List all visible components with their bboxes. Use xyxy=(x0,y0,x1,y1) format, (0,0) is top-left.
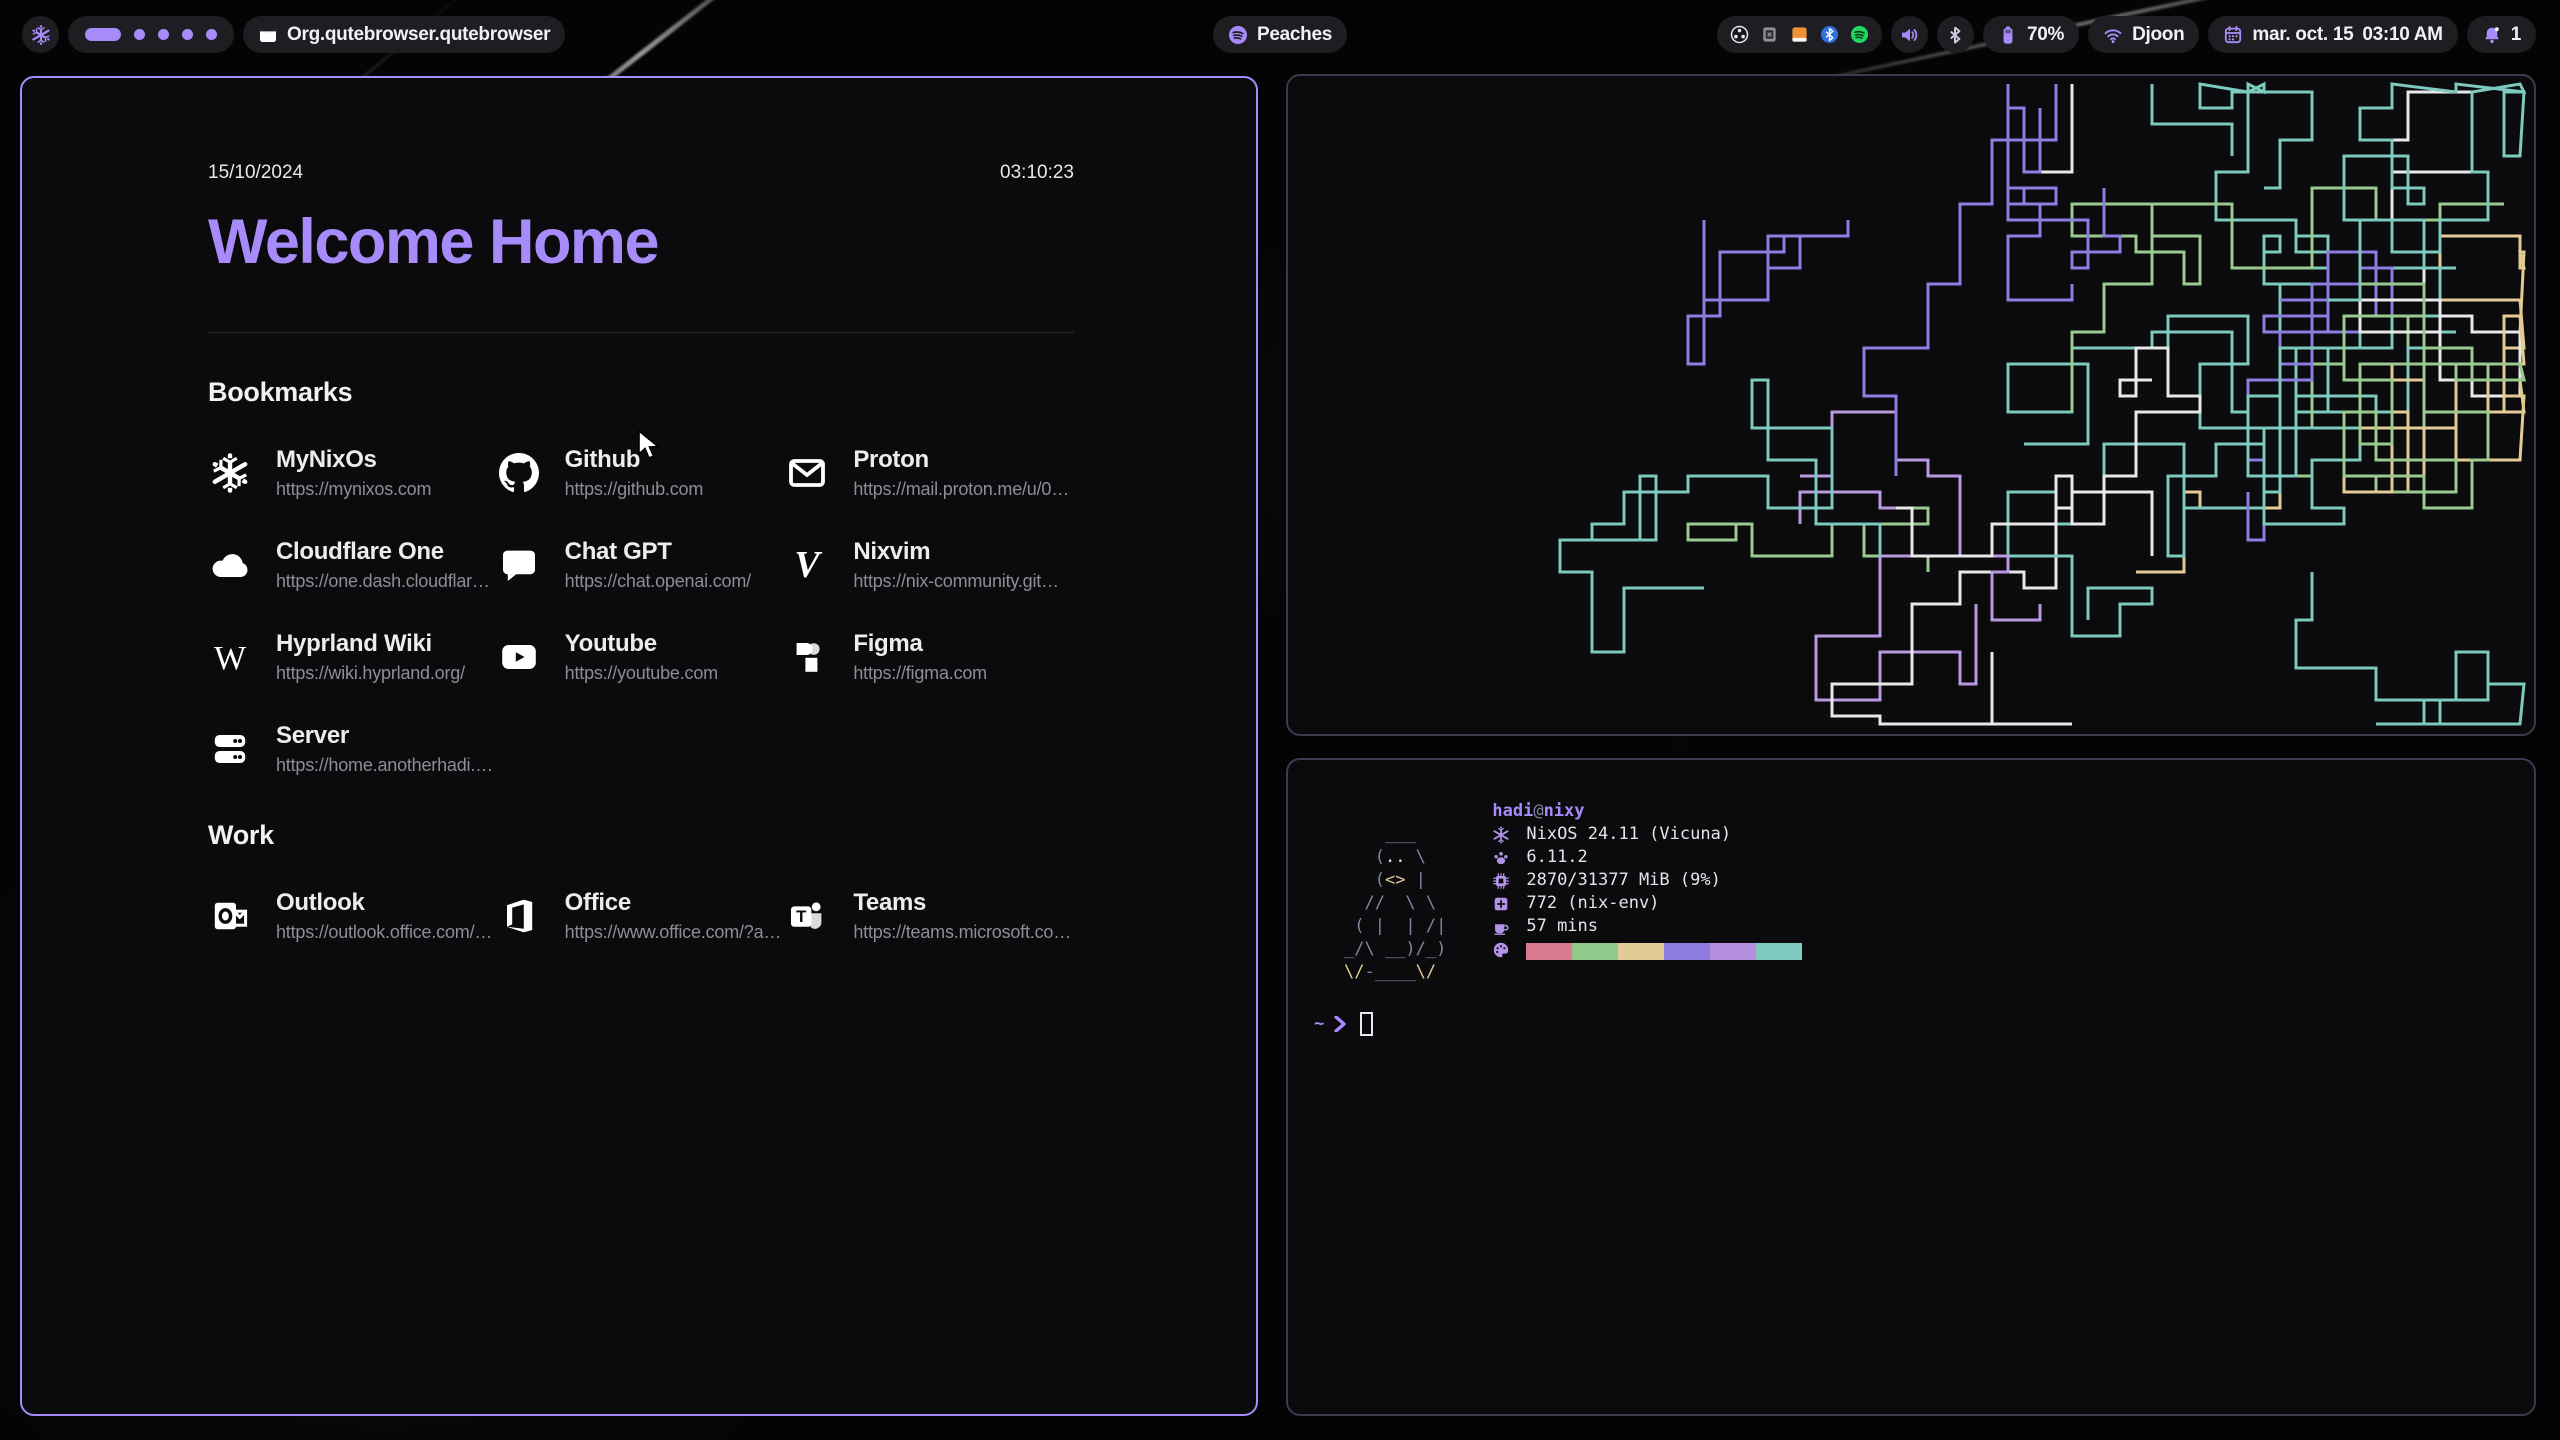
bookmark-grid: MyNixOs https://mynixos.com Github https… xyxy=(208,446,1074,776)
youtube-icon xyxy=(497,635,541,679)
color-swatch xyxy=(1618,943,1664,960)
workspace-dot[interactable] xyxy=(134,29,145,40)
bookmark-item[interactable]: Office https://www.office.com/?a… xyxy=(497,889,786,943)
fetch-user: hadi xyxy=(1492,800,1533,823)
bookmark-url: https://figma.com xyxy=(853,663,987,684)
bookmark-title: Server xyxy=(276,722,493,750)
spotify-icon xyxy=(1228,25,1248,45)
bookmark-title: MyNixOs xyxy=(276,446,431,474)
bookmark-title: Outlook xyxy=(276,889,492,917)
bookmark-item[interactable]: MyNixOs https://mynixos.com xyxy=(208,446,497,500)
section-header: Bookmarks xyxy=(208,377,1074,408)
workspace-dot[interactable] xyxy=(206,29,217,40)
terminal-cursor xyxy=(1360,1012,1373,1036)
teams-icon: T xyxy=(785,894,829,938)
window-icon xyxy=(258,25,278,45)
bookmark-item[interactable]: T Teams https://teams.microsoft.co… xyxy=(785,889,1074,943)
bookmark-title: Office xyxy=(565,889,782,917)
qutebrowser-window: 15/10/2024 03:10:23 Welcome Home Bookmar… xyxy=(20,76,1258,1416)
snowflake-icon xyxy=(1492,826,1512,844)
nixos-launcher-button[interactable] xyxy=(22,16,59,53)
battery-pill[interactable]: 70% xyxy=(1983,16,2079,53)
cloud-icon xyxy=(208,543,252,587)
bookmark-url: https://nix-community.git… xyxy=(853,571,1059,592)
focused-window-title: Org.qutebrowser.qutebrowser xyxy=(287,24,550,46)
bluetooth-icon xyxy=(1945,25,1965,45)
bluetooth-button[interactable] xyxy=(1937,16,1974,53)
nixos-logo-icon xyxy=(31,25,51,45)
bluetooth-badge-icon[interactable] xyxy=(1820,25,1839,44)
server-icon xyxy=(208,727,252,771)
box-icon[interactable] xyxy=(1760,25,1779,44)
bookmark-url: https://teams.microsoft.co… xyxy=(853,922,1071,943)
fetch-info-value: 2870/31377 MiB (9%) xyxy=(1526,869,1720,892)
battery-icon xyxy=(1998,25,2018,45)
calendar-icon xyxy=(2223,25,2243,45)
prompt-chevron-icon xyxy=(1334,1016,1346,1032)
bookmark-url: https://home.anotherhadi.… xyxy=(276,755,493,776)
bookmark-title: Proton xyxy=(853,446,1069,474)
shell-prompt[interactable]: ~ xyxy=(1314,1012,1373,1036)
chat-icon xyxy=(497,543,541,587)
bookmark-title: Github xyxy=(565,446,703,474)
github-icon xyxy=(497,451,541,495)
bookmark-item[interactable]: Cloudflare One https://one.dash.cloudfla… xyxy=(208,538,497,592)
kernel-icon xyxy=(1492,849,1512,867)
color-swatch xyxy=(1572,943,1618,960)
fetch-info-value: NixOS 24.11 (Vicuna) xyxy=(1526,823,1731,846)
bookmark-url: https://mynixos.com xyxy=(276,479,431,500)
page-title: Welcome Home xyxy=(208,206,1074,278)
bookmark-url: https://youtube.com xyxy=(565,663,718,684)
nixvim-icon: V xyxy=(785,543,829,587)
fetch-terminal-window[interactable]: ___ (.. \ (<> | // \ \ ( | | /|_/\ __)/_… xyxy=(1286,758,2536,1416)
bookmark-grid: Outlook https://outlook.office.com/… Off… xyxy=(208,889,1074,943)
downloads-icon[interactable] xyxy=(1790,25,1809,44)
palette-icon xyxy=(1492,941,1512,959)
fetch-info-value: 6.11.2 xyxy=(1526,846,1587,869)
pipes-screensaver xyxy=(1288,76,2534,734)
bookmark-item[interactable]: Chat GPT https://chat.openai.com/ xyxy=(497,538,786,592)
fetch-at: @ xyxy=(1533,800,1543,823)
bookmark-url: https://github.com xyxy=(565,479,703,500)
svg-text:W: W xyxy=(214,640,247,677)
figma-icon xyxy=(785,635,829,679)
startpage-date: 15/10/2024 xyxy=(208,162,303,184)
clock-date: mar. oct. 15 xyxy=(2252,24,2353,46)
prompt-cwd: ~ xyxy=(1314,1013,1324,1036)
bookmark-title: Teams xyxy=(853,889,1071,917)
mail-icon xyxy=(785,451,829,495)
nix-icon xyxy=(208,451,252,495)
media-player-pill[interactable]: Peaches xyxy=(1213,16,1347,53)
wifi-ssid: Djoon xyxy=(2132,24,2184,46)
media-track-label: Peaches xyxy=(1257,24,1332,46)
bookmark-title: Cloudflare One xyxy=(276,538,490,566)
fetch-host: nixy xyxy=(1544,800,1585,823)
bookmark-url: https://mail.proton.me/u/0… xyxy=(853,479,1069,500)
bookmark-url: https://www.office.com/?a… xyxy=(565,922,782,943)
workspaces-pill xyxy=(68,16,234,53)
tux-ascii-art: ___ (.. \ (<> | // \ \ ( | | /|_/\ __)/_… xyxy=(1344,823,1446,984)
bookmark-url: https://outlook.office.com/… xyxy=(276,922,492,943)
clock-pill[interactable]: mar. oct. 15 03:10 AM xyxy=(2208,16,2457,53)
outlook-icon xyxy=(208,894,252,938)
bookmark-item[interactable]: Server https://home.anotherhadi.… xyxy=(208,722,497,776)
notifications-pill[interactable]: 1 xyxy=(2467,16,2536,53)
mouse-cursor xyxy=(637,430,663,460)
section-header: Work xyxy=(208,820,1074,851)
startpage-time: 03:10:23 xyxy=(1000,162,1074,184)
bookmark-url: https://wiki.hyprland.org/ xyxy=(276,663,465,684)
bookmark-title: Nixvim xyxy=(853,538,1059,566)
top-bar: Org.qutebrowser.qutebrowser Peaches 70% … xyxy=(0,16,2560,54)
fetch-info-value: 772 (nix-env) xyxy=(1526,892,1659,915)
office-icon xyxy=(497,894,541,938)
pipes-terminal-window[interactable] xyxy=(1286,74,2536,736)
spotify-green-icon[interactable] xyxy=(1850,25,1869,44)
focused-window-pill[interactable]: Org.qutebrowser.qutebrowser xyxy=(243,16,565,53)
workspace-dot[interactable] xyxy=(85,28,121,41)
bookmark-title: Hyprland Wiki xyxy=(276,630,465,658)
packages-icon xyxy=(1492,895,1512,913)
fetch-info-value: 57 mins xyxy=(1526,915,1598,938)
bookmark-title: Figma xyxy=(853,630,987,658)
workspace-dot[interactable] xyxy=(158,29,169,40)
color-swatch xyxy=(1710,943,1756,960)
wifi-pill[interactable]: Djoon xyxy=(2088,16,2199,53)
battery-percent: 70% xyxy=(2027,24,2064,46)
bookmark-url: https://one.dash.cloudflar… xyxy=(276,571,490,592)
memory-icon xyxy=(1492,872,1512,890)
volume-button[interactable] xyxy=(1891,16,1928,53)
clock-time: 03:10 AM xyxy=(2362,24,2442,46)
color-swatch xyxy=(1526,943,1572,960)
divider xyxy=(208,332,1074,333)
color-swatch xyxy=(1756,943,1802,960)
bookmark-item[interactable]: Proton https://mail.proton.me/u/0… xyxy=(785,446,1074,500)
bell-icon xyxy=(2482,25,2502,45)
bookmark-item[interactable]: Outlook https://outlook.office.com/… xyxy=(208,889,497,943)
fetch-info: hadi@nixy NixOS 24.11 (Vicuna) 6.11.2 28… xyxy=(1492,800,1802,984)
bookmark-title: Youtube xyxy=(565,630,718,658)
uptime-icon xyxy=(1492,918,1512,936)
bookmark-title: Chat GPT xyxy=(565,538,751,566)
terminal-color-palette xyxy=(1526,943,1802,960)
workspace-dot[interactable] xyxy=(182,29,193,40)
svg-text:T: T xyxy=(796,907,807,926)
color-swatch xyxy=(1664,943,1710,960)
speaker-icon xyxy=(1899,25,1919,45)
wifi-icon xyxy=(2103,25,2123,45)
svg-text:V: V xyxy=(795,545,823,585)
bookmark-item[interactable]: W Hyprland Wiki https://wiki.hyprland.or… xyxy=(208,630,497,684)
system-tray-pill xyxy=(1717,16,1882,53)
obs-icon[interactable] xyxy=(1730,25,1749,44)
bookmark-item[interactable]: V Nixvim https://nix-community.git… xyxy=(785,538,1074,592)
wiki-icon: W xyxy=(208,635,252,679)
notification-count: 1 xyxy=(2511,24,2521,46)
bookmark-item[interactable]: Youtube https://youtube.com xyxy=(497,630,786,684)
bookmark-item[interactable]: Figma https://figma.com xyxy=(785,630,1074,684)
bookmark-url: https://chat.openai.com/ xyxy=(565,571,751,592)
